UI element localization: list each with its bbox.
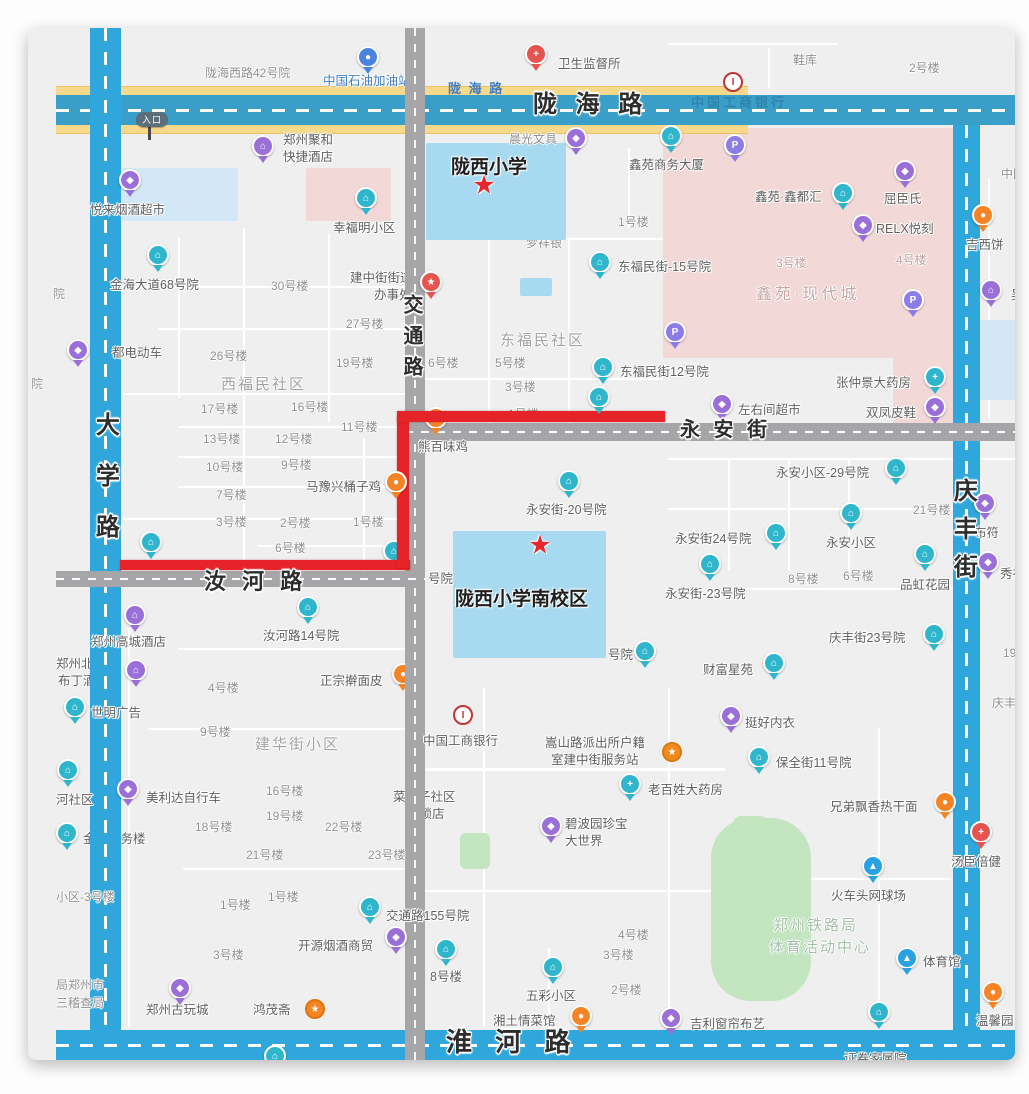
bank-icon[interactable]: I [453,705,473,725]
zhengquan-pin[interactable]: ⌂ [868,1001,890,1030]
building-label: 11号楼 [341,418,377,435]
huochetou-label[interactable]: 火车头网球场 [831,888,906,904]
xindu-hui-label[interactable]: 鑫苑·鑫都汇 [755,189,822,205]
relx-pin[interactable]: ◆ [852,214,874,243]
building-label: 3号楼 [776,254,807,271]
building-label: 1号楼 [220,896,251,913]
building-icon: ⌂ [264,1045,286,1060]
street-line [148,728,405,730]
gaocheng-label[interactable]: 郑州高城酒店 [91,634,166,650]
pin-tail [980,513,990,525]
dongfumin-12-pin[interactable]: ⌂ [592,356,614,385]
building-label: 22号楼 [325,818,362,835]
street-line [128,628,130,1028]
pin-tail [976,842,986,854]
xingfuming-pin[interactable]: ⌂ [355,187,377,216]
shop-icon: ◆ [660,1007,682,1029]
guwancheng-pin[interactable]: ◆ [169,977,191,1006]
shop-icon: ◆ [565,127,587,149]
tinghao-label[interactable]: 挺好内衣 [745,715,795,731]
building-icon: ⌂ [840,502,862,524]
parking-icon: P [902,289,924,311]
shop-icon: ◆ [894,160,916,182]
xinyuan-tower-pin[interactable]: ⌂ [660,125,682,154]
pin-tail [640,661,650,673]
parking-1-pin[interactable]: P [724,134,746,163]
huochetou-pin[interactable]: ▲ [862,855,884,884]
building-label: 1号楼 [268,888,299,905]
pin-tail [594,407,604,419]
building-label: 9号楼 [281,456,312,473]
pin-tail [70,717,80,729]
building-label: 3号楼 [505,378,536,395]
building-label: 院 [53,285,65,302]
shuangfeng-label[interactable]: 双凤皮鞋 [866,405,916,421]
building-label: 18号楼 [195,818,232,835]
pin-tail [670,342,680,354]
bibo-pin[interactable]: ◆ [540,815,562,844]
building-label: 21号楼 [246,846,283,863]
yongan-20-label[interactable]: 永安街-20号院 [526,502,607,518]
kaiyuan-pin[interactable]: ◆ [385,926,407,955]
pin-tail [900,181,910,193]
yongan-xiaoqu-pin[interactable]: ⌂ [840,502,862,531]
ruhe-14-label[interactable]: 汝河路14号院 [263,628,339,644]
pin-tail [930,417,940,429]
buding-pin[interactable]: ⌂ [125,659,147,688]
juhe-hotel-label-line2[interactable]: 快捷酒店 [283,149,333,165]
tiyuguan-pin[interactable]: ▲ [896,947,918,976]
juhe-hotel-label-line1[interactable]: 郑州聚和 [283,132,333,148]
wenxinyuan-pin[interactable]: ● [982,981,1004,1010]
pin-tail [441,959,451,971]
shop-icon: ◆ [540,815,562,837]
building-label: 7号楼 [216,486,247,503]
wucai-label[interactable]: 五彩小区 [526,988,576,1004]
caifu-label[interactable]: 财富星苑 [703,662,753,678]
dongfumin-15-label[interactable]: 东福民街-15号院 [618,259,711,275]
star-icon: ★ [420,271,442,293]
building-icon: ⌂ [914,543,936,565]
building-label: 4号楼 [208,679,239,696]
dongfumin-15-pin[interactable]: ⌂ [589,251,611,280]
building-label: 9号楼 [200,723,231,740]
building-icon: ⌂ [832,182,854,204]
school-name-label[interactable]: 陇西小学南校区 [455,584,588,611]
youzheng-pin[interactable]: ⌂ [264,1045,286,1060]
pin-tail [426,292,436,304]
building-label: 体育活动中心 [769,936,871,957]
zhangzhongjing-label[interactable]: 张仲景大药房 [836,375,911,391]
building-icon: ⌂ [57,759,79,781]
paichusuo-label-line1[interactable]: 嵩山路派出所户籍 [545,735,645,751]
pin-tail [902,968,912,980]
pin-tail [63,780,73,792]
bld-8-pin-label[interactable]: 8号楼 [430,969,462,985]
building-icon: ⌂ [885,457,907,479]
building-icon: ⌂ [588,386,610,408]
building-label: 3号楼 [603,946,634,963]
road-name-label: 汝 河 路 [204,570,307,594]
baoquan-11-label[interactable]: 保全街11号院 [776,755,851,771]
dudiandongche-label[interactable]: 都电动车 [112,345,162,361]
street-line [668,43,838,45]
yard-frag-b-label[interactable]: 号院 [428,571,453,587]
shop-icon: ◆ [977,551,999,573]
building-icon: ⌂ [359,896,381,918]
pin-tail [146,552,156,564]
zuoyoujian-pin[interactable]: ◆ [711,393,733,422]
building-label: 13号楼 [203,430,240,447]
building-icon: ⌂ [297,596,319,618]
pin-tail [73,360,83,372]
building-icon: ⌂ [748,746,770,768]
xiongbaiwei-label[interactable]: 熊百味鸡 [418,439,468,455]
ganmianpi-label[interactable]: 正宗擀面皮 [320,673,383,689]
pharmacy-icon: + [924,366,946,388]
road-name-label: 淮 河 路 [446,1028,578,1057]
pin-tail [391,492,401,504]
building-label: 晨光文具 [509,130,557,147]
pin-tail [983,572,993,584]
yongan-23-pin[interactable]: ⌂ [699,553,721,582]
shiming-label[interactable]: 世明广告 [91,705,141,721]
school-star-icon: ★ [528,530,551,561]
health-icon: + [970,821,992,843]
food-icon: ● [385,471,407,493]
building-label: 19号楼 [266,807,303,824]
street-line [183,868,405,870]
school-area-polygon [520,278,552,296]
xiongdi-label[interactable]: 兄弟飘香热干面 [830,799,918,815]
parking-2-pin[interactable]: P [664,321,686,350]
yongan-24-label[interactable]: 永安街24号院 [675,531,751,547]
pin-tail [62,843,72,855]
bld-8-pin-pin[interactable]: ⌂ [435,938,457,967]
qingfeng-23-pin[interactable]: ⌂ [923,623,945,652]
shop-icon: ◆ [720,705,742,727]
building-label: 10号楼 [206,458,243,475]
pin-tail [666,146,676,158]
shop-icon: ◆ [67,339,89,361]
dongfumin-12-label[interactable]: 东福民街12号院 [620,364,709,380]
watsons-label[interactable]: 屈臣氏 [884,191,922,207]
shop-icon: ◆ [974,492,996,514]
building-icon: ⌂ [660,125,682,147]
street-line [768,48,770,88]
building-icon: ⌂ [592,356,614,378]
building-icon: ⌂ [589,251,611,273]
tangchen-pin[interactable]: + [970,821,992,850]
street-line [425,890,711,892]
pinhong-label[interactable]: 品虹花园 [900,577,950,593]
tinghao-pin[interactable]: ◆ [720,705,742,734]
building-label: 3号楼 [213,946,244,963]
building-label: 6号楼 [275,539,306,556]
building-label: 中国 [1001,165,1015,182]
he-shequ-label[interactable]: 河社区 [56,792,94,808]
pin-tail [130,625,140,637]
building-icon: ⌂ [147,244,169,266]
jinhe-pin[interactable]: ⌂ [56,822,78,851]
mayuxing-label[interactable]: 马豫兴桶子鸡 [306,479,381,495]
building-label: 26号楼 [210,347,247,364]
qingfeng-23-label[interactable]: 庆丰街23号院 [829,630,905,646]
pin-tail [988,1002,998,1014]
jinhai-68-label[interactable]: 金海大道68号院 [110,277,199,293]
teal-pin-1-pin[interactable]: ⌂ [588,386,610,415]
pin-tail [595,272,605,284]
green-area-polygon [460,833,490,869]
building-label: 2号楼 [611,981,642,998]
pin-tail [363,67,373,79]
meilida-label[interactable]: 美利达自行车 [146,790,221,806]
pin-tail [258,156,268,168]
mayuxing-pin[interactable]: ● [385,471,407,500]
yuelai-store-label[interactable]: 悦来烟酒超市 [90,202,165,218]
sports-icon: ▲ [862,855,884,877]
entrance-pole-icon [148,127,151,140]
laobaixing-pin[interactable]: + [619,773,641,802]
tiyuguan-label[interactable]: 体育馆 [923,954,961,970]
parking-icon: P [664,321,686,343]
meilida-pin[interactable]: ◆ [117,778,139,807]
pin-tail [771,543,781,555]
gaocheng-pin[interactable]: ⌂ [124,604,146,633]
petrochina-gas-pin[interactable]: ● [357,46,379,75]
yongan-20-pin[interactable]: ⌂ [558,470,580,499]
police-icon[interactable]: ★ [662,742,682,762]
jixibing-label[interactable]: 吉西饼 [966,237,1004,253]
building-icon: ⌂ [699,553,721,575]
yongan-29-label[interactable]: 永安小区-29号院 [776,465,869,481]
shop-icon: ◆ [385,926,407,948]
parking-3-pin[interactable]: P [902,289,924,318]
weisheng-jianduso-pin[interactable]: + [525,43,547,72]
building-label: 5号楼 [495,354,526,371]
pin-tail [131,680,141,692]
yongan-xiaoqu-label[interactable]: 永安小区 [826,535,876,551]
wujia-pin[interactable]: ⌂ [980,279,1002,308]
shop-icon: ◆ [119,169,141,191]
wenxinyuan-label[interactable]: 温馨园 [976,1013,1014,1029]
food-icon: ● [934,791,956,813]
road-name-label: 交通路 [400,294,422,387]
pin-tail [548,977,558,989]
pin-tail [940,812,950,824]
building-icon: ⌂ [140,531,162,553]
kaiyuan-label[interactable]: 开源烟酒商贸 [298,938,373,954]
building-label: 院 [31,375,43,392]
xiongdi-pin[interactable]: ● [934,791,956,820]
pin-tail [874,1022,884,1034]
yongan-29-pin[interactable]: ⌂ [885,457,907,486]
building-label: 1号楼 [618,213,649,230]
yard-frag-a-pin[interactable]: ⌂ [634,640,656,669]
icbc-bank-label[interactable]: 中国工商银行 [423,733,498,749]
pin-tail [123,799,133,811]
paichusuo-label-line2[interactable]: 室建中街服务站 [551,752,639,768]
road-name-label: 陇 海 路 [448,82,504,96]
jiedao-office-label-line1[interactable]: 建中街街道 [350,270,413,286]
weisheng-jianduso-label[interactable]: 卫生监督所 [558,56,621,72]
xiuyi-label[interactable]: 秀衣 [1000,566,1015,582]
street-line [425,768,725,771]
jinhai-68-pin[interactable]: ⌂ [147,244,169,273]
juhe-hotel-pin[interactable]: ⌂ [252,135,274,164]
building-icon: ⌂ [923,623,945,645]
building-icon: ⌂ [763,652,785,674]
hotel-icon: ⌂ [125,659,147,681]
pin-tail [920,564,930,576]
tangchen-label[interactable]: 汤臣倍健 [951,854,1001,870]
jiaotonglu-155-pin[interactable]: ⌂ [359,896,381,925]
shop-icon: ◆ [711,393,733,415]
baoquan-11-pin[interactable]: ⌂ [748,746,770,775]
green-area-polygon [733,816,768,870]
xindu-hui-pin[interactable]: ⌂ [832,182,854,211]
food-icon: ● [982,981,1004,1003]
building-icon: ⌂ [542,956,564,978]
street-line [363,438,365,573]
parking-icon: P [724,134,746,156]
street-line [668,688,670,1028]
pink-area-polygon [306,168,391,221]
map-canvas[interactable]: ★陇西小学★陇西小学南校区陇 海 路陇 海 路中国工商银行大学路交通路庆丰街永 … [28,28,1015,1060]
watsons-pin[interactable]: ◆ [894,160,916,189]
building-icon: ⌂ [355,187,377,209]
jiaotonglu-155-label[interactable]: 交通路155号院 [386,908,469,924]
bibo-label-line1[interactable]: 碧波园珍宝 [565,816,628,832]
building-icon: ⌂ [765,522,787,544]
building-label: 三稽查局 [56,994,104,1011]
shop-pin-1-pin[interactable]: ◆ [565,127,587,156]
jili-pin[interactable]: ◆ [660,1007,682,1036]
building-icon: ⌂ [634,640,656,662]
street-line [668,508,953,510]
jili-label[interactable]: 吉利窗帘布艺 [690,1016,765,1032]
building-label: 局郑州市 [56,976,104,993]
wucai-pin[interactable]: ⌂ [542,956,564,985]
dudiandongche-pin[interactable]: ◆ [67,339,89,368]
street-line [728,458,730,571]
pin-tail [769,673,779,685]
pin-tail [868,876,878,888]
pin-tail [908,310,918,322]
pin-tail [175,998,185,1010]
bufu-label[interactable]: 布符 [974,525,999,541]
pin-tail [153,265,163,277]
building-label: 鑫苑·现代城 [756,280,859,304]
jixibing-pin[interactable]: ● [972,204,994,233]
building-label: 东福民社区 [500,329,585,350]
hongmaozhai-label[interactable]: 鸿茂斋 [253,1002,291,1018]
food-icon: ● [570,1005,592,1027]
pin-tail [666,1028,676,1040]
yard-frag-a-label[interactable]: 号院 [608,647,633,663]
street-line [178,238,180,398]
pin-tail [303,617,313,629]
building-icon: ⌂ [435,938,457,960]
shuangfeng-pin[interactable]: ◆ [924,396,946,425]
pin-tail [726,726,736,738]
teal-pin-2-pin[interactable]: ⌂ [140,531,162,560]
building-label: 17号楼 [201,400,238,417]
building-label: 8号楼 [788,570,819,587]
he-shequ-pin[interactable]: ⌂ [57,759,79,788]
laobaixing-label[interactable]: 老百姓大药房 [648,782,723,798]
shop-icon: ◆ [169,977,191,999]
building-label: 19号楼 [336,354,373,371]
yongan-23-label[interactable]: 永安街-23号院 [665,586,746,602]
sports-icon: ▲ [896,947,918,969]
map-screenshot-page: ★陇西小学★陇西小学南校区陇 海 路陇 海 路中国工商银行大学路交通路庆丰街永 … [0,0,1029,1094]
pinhong-pin[interactable]: ⌂ [914,543,936,572]
building-label: 3号楼 [216,513,247,530]
wujia-label[interactable]: 吴家 [1011,287,1015,303]
pin-tail [365,917,375,929]
pin-tail [846,523,856,535]
hotel-icon: ⌂ [980,279,1002,301]
building-label: 4号楼 [896,251,927,268]
building-label: 西福民社区 [221,373,306,394]
school-district-route [397,411,665,422]
road-name-label: 中国工商银行 [691,96,787,110]
ruhe-14-pin[interactable]: ⌂ [297,596,319,625]
jiedao-office-pin[interactable]: ★ [420,271,442,300]
pin-tail [546,836,556,848]
road-center-dash [414,28,416,1060]
pin-tail [986,300,996,312]
shop-icon: ◆ [117,778,139,800]
yongan-24-pin[interactable]: ⌂ [765,522,787,551]
building-label: 12号楼 [275,430,312,447]
pin-tail [858,235,868,247]
pin-tail [705,574,715,586]
food-icon[interactable]: ★ [305,999,325,1019]
xingfuming-label[interactable]: 幸福明小区 [333,220,396,236]
building-label: 21号楼 [913,501,950,518]
building-label: 2号楼 [280,514,311,531]
pin-tail [125,190,135,202]
pin-tail [838,203,848,215]
zhangzhongjing-pin[interactable]: + [924,366,946,395]
building-label: 郑州铁路局 [773,914,858,935]
road-name-label: 永 安 街 [680,419,771,441]
bank-icon[interactable]: I [723,72,743,92]
pharmacy-icon: + [619,773,641,795]
bufu-pin[interactable]: ◆ [974,492,996,521]
building-label: 16号楼 [291,398,328,415]
school-name-label[interactable]: 陇西小学 [451,152,527,179]
zhengquan-label[interactable]: 证券家属院 [844,1051,907,1060]
building-label: 27号楼 [346,315,383,332]
entrance-badge: 入口 [136,112,168,127]
xiuyi-pin[interactable]: ◆ [977,551,999,580]
bibo-label-line2[interactable]: 大世界 [565,833,603,849]
yuelai-store-pin[interactable]: ◆ [119,169,141,198]
shiming-pin[interactable]: ⌂ [64,696,86,725]
relx-label[interactable]: RELX悦刻 [876,221,934,237]
shop-icon: ◆ [924,396,946,418]
building-label: 6号楼 [428,354,459,371]
zuoyoujian-label[interactable]: 左右间超市 [738,402,801,418]
pin-tail [754,767,764,779]
building-label: 2号楼 [909,59,940,76]
pale-area-polygon [978,320,1015,400]
xinyuan-tower-label[interactable]: 鑫苑商务大厦 [629,157,704,173]
caifu-pin[interactable]: ⌂ [763,652,785,681]
